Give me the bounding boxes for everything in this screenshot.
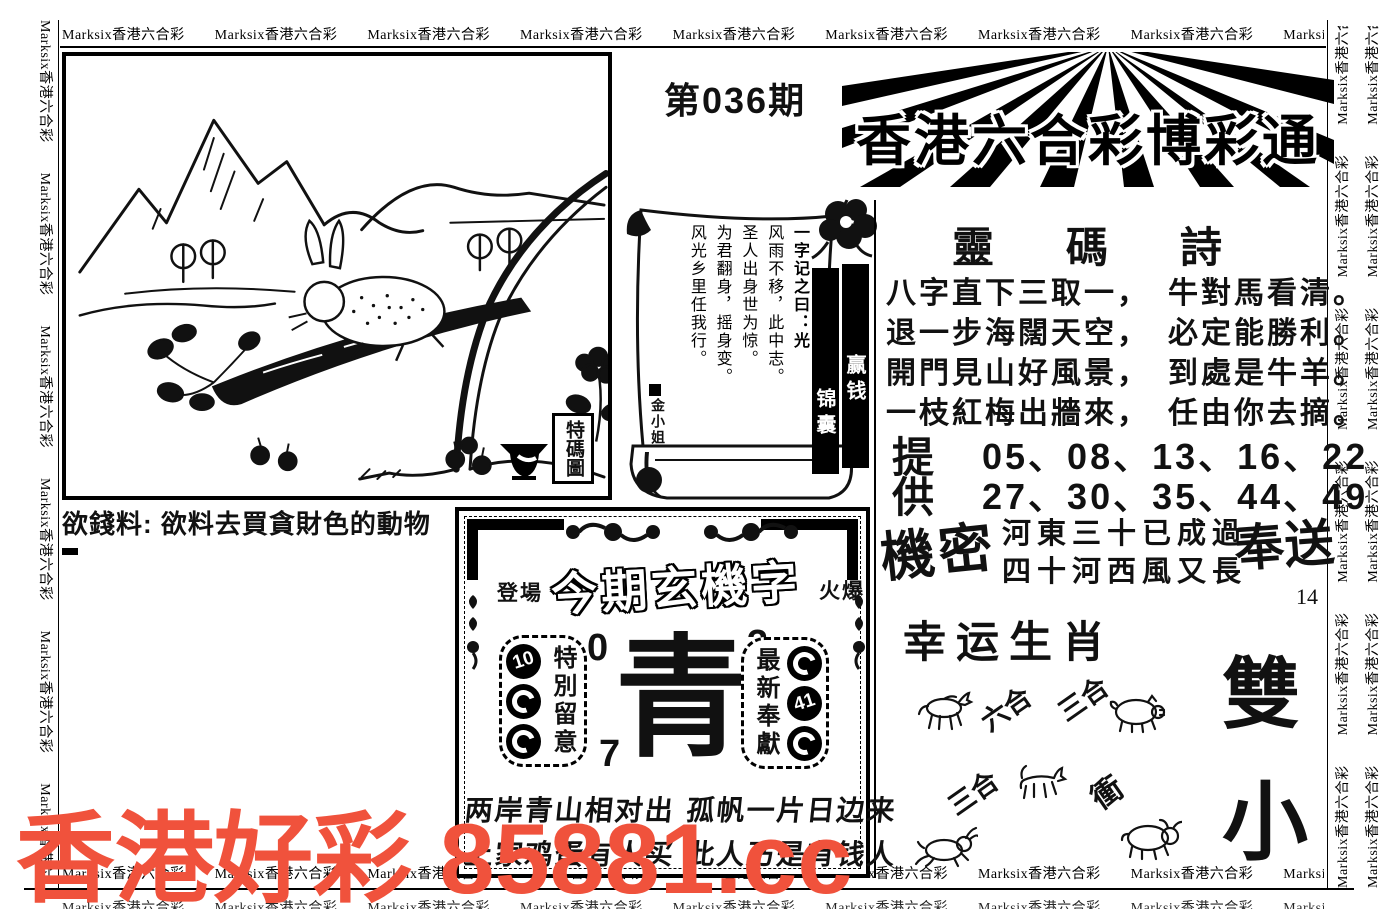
ball-number: 41 bbox=[791, 689, 818, 716]
tag-on-stage: 登場 bbox=[497, 577, 543, 607]
blank-ball-ring bbox=[789, 728, 820, 759]
scroll-verse-line: 风雨不移，此中志。 bbox=[763, 224, 784, 446]
horse-icon bbox=[914, 686, 976, 732]
camellia-icon bbox=[808, 192, 878, 264]
blank-ball-ring bbox=[789, 648, 820, 679]
ball-column: 41 bbox=[787, 646, 822, 761]
tabloid-page: Marksix香港六合彩 Marksix香港六合彩 Marksix香港六合彩 M… bbox=[0, 0, 1388, 909]
newest-offering-label: 最新奉獻 bbox=[748, 647, 783, 759]
secret-couplet-line-1: 河東三十已成過 bbox=[1002, 510, 1247, 552]
banner-tips-bag: 锦囊 bbox=[812, 268, 839, 474]
rabbit-icon bbox=[912, 824, 978, 868]
scroll-ornament-icon bbox=[695, 517, 805, 547]
blank-ball-ring bbox=[508, 726, 539, 757]
money-tip-caption: 欲錢料: 欲料去買貪財色的動物 bbox=[62, 504, 431, 541]
zodiac-label-liuhe: 六合 bbox=[972, 676, 1039, 739]
blank-ball-ring bbox=[508, 686, 539, 717]
scroll-verse-line: 风光乡里任我行。 bbox=[686, 224, 707, 446]
number-ball: 41 bbox=[787, 686, 822, 721]
scroll-verse-line: 为君翻身，摇身变。 bbox=[712, 224, 733, 446]
scroll-verse: 一字记之曰：光 风雨不移，此中志。 圣人出身世为惊。 为君翻身，摇身变。 风光乡… bbox=[644, 224, 810, 446]
page-number: 14 bbox=[1296, 584, 1318, 610]
border-top-marquee: Marksix香港六合彩 Marksix香港六合彩 Marksix香港六合彩 M… bbox=[62, 24, 1324, 44]
number-ball bbox=[787, 726, 822, 761]
tag-hot: 火爆 bbox=[819, 575, 865, 605]
ground-berries bbox=[251, 438, 490, 474]
signature: 金小姐 bbox=[648, 398, 668, 446]
ox-icon bbox=[1120, 812, 1182, 862]
mystery-character: 青 bbox=[611, 629, 751, 769]
watermark-site: 香港好彩 85881.cc bbox=[16, 778, 852, 909]
column-divider bbox=[874, 200, 876, 878]
zodiac-label-chong: 衝 bbox=[1080, 763, 1131, 818]
scroll-verse-line: 圣人出身世为惊。 bbox=[738, 224, 759, 446]
zodiac-label-sanhe-2: 三合 bbox=[939, 760, 1006, 823]
special-code-picture: 特碼圖 bbox=[62, 52, 612, 500]
ball-number: 10 bbox=[510, 647, 537, 674]
number-ball: 10 bbox=[506, 644, 541, 679]
caption-dash bbox=[62, 548, 78, 555]
gift-label: 奉送 bbox=[1232, 503, 1337, 582]
poem-title: 靈碼詩 bbox=[952, 214, 1294, 275]
special-attention-panel: 10 特別留意 bbox=[499, 635, 587, 767]
poem-line-3: 開門見山好風景， 到處是牛羊。 bbox=[886, 348, 1326, 392]
corner-number-top-left: 0 bbox=[587, 627, 608, 670]
corner-number-bottom-left: 7 bbox=[599, 733, 620, 776]
secret-couplet-line-2: 四十河西風又長 bbox=[1002, 548, 1247, 590]
special-attention-label: 特別留意 bbox=[545, 645, 580, 757]
issue-number: 第036期 bbox=[664, 72, 806, 124]
masthead-title: 香港六合彩博彩通 bbox=[842, 96, 1334, 176]
masthead: 香港六合彩博彩通 bbox=[842, 52, 1334, 187]
mystery-title: 今期玄機字 bbox=[549, 547, 782, 625]
side-ornament-icon bbox=[461, 591, 485, 671]
poem-line-4: 一枝紅梅出牆來， 任由你去摘。 bbox=[886, 388, 1326, 432]
scroll-ornament-icon bbox=[559, 517, 669, 547]
poem-line-1: 八字直下三取一， 牛對馬看清。 bbox=[886, 268, 1326, 312]
scroll-verse-intro: 一字记之曰：光 bbox=[789, 224, 810, 446]
zodiac-label-sanhe-1: 三合 bbox=[1049, 666, 1116, 729]
left-rule bbox=[58, 20, 59, 888]
dog-icon bbox=[1012, 758, 1068, 804]
border-left-marquee: Marksix香港六合彩 Marksix香港六合彩 Marksix香港六合彩 M… bbox=[36, 20, 56, 882]
number-ball bbox=[506, 724, 541, 759]
secret-label: 機密 bbox=[876, 502, 1000, 593]
lucky-zodiac-title: 幸运生肖 bbox=[903, 608, 1115, 670]
newest-offering-panel: 最新奉獻 41 bbox=[741, 637, 829, 769]
ball-column: 10 bbox=[506, 644, 541, 759]
size-hint-double: 雙 bbox=[1222, 632, 1300, 744]
top-rule bbox=[60, 46, 1326, 48]
poem-line-2: 退一步海闊天空， 必定能勝利。 bbox=[886, 308, 1326, 352]
size-hint-small: 小 bbox=[1222, 752, 1308, 877]
signature-square bbox=[649, 384, 661, 396]
number-ball bbox=[506, 684, 541, 719]
number-ball bbox=[787, 646, 822, 681]
special-code-seal: 特碼圖 bbox=[552, 413, 594, 484]
banner-win-money: 赢钱 bbox=[842, 264, 869, 468]
pig-icon bbox=[1108, 690, 1168, 736]
ink-pot-icon bbox=[498, 430, 550, 482]
rabbit-drawing bbox=[289, 221, 445, 361]
